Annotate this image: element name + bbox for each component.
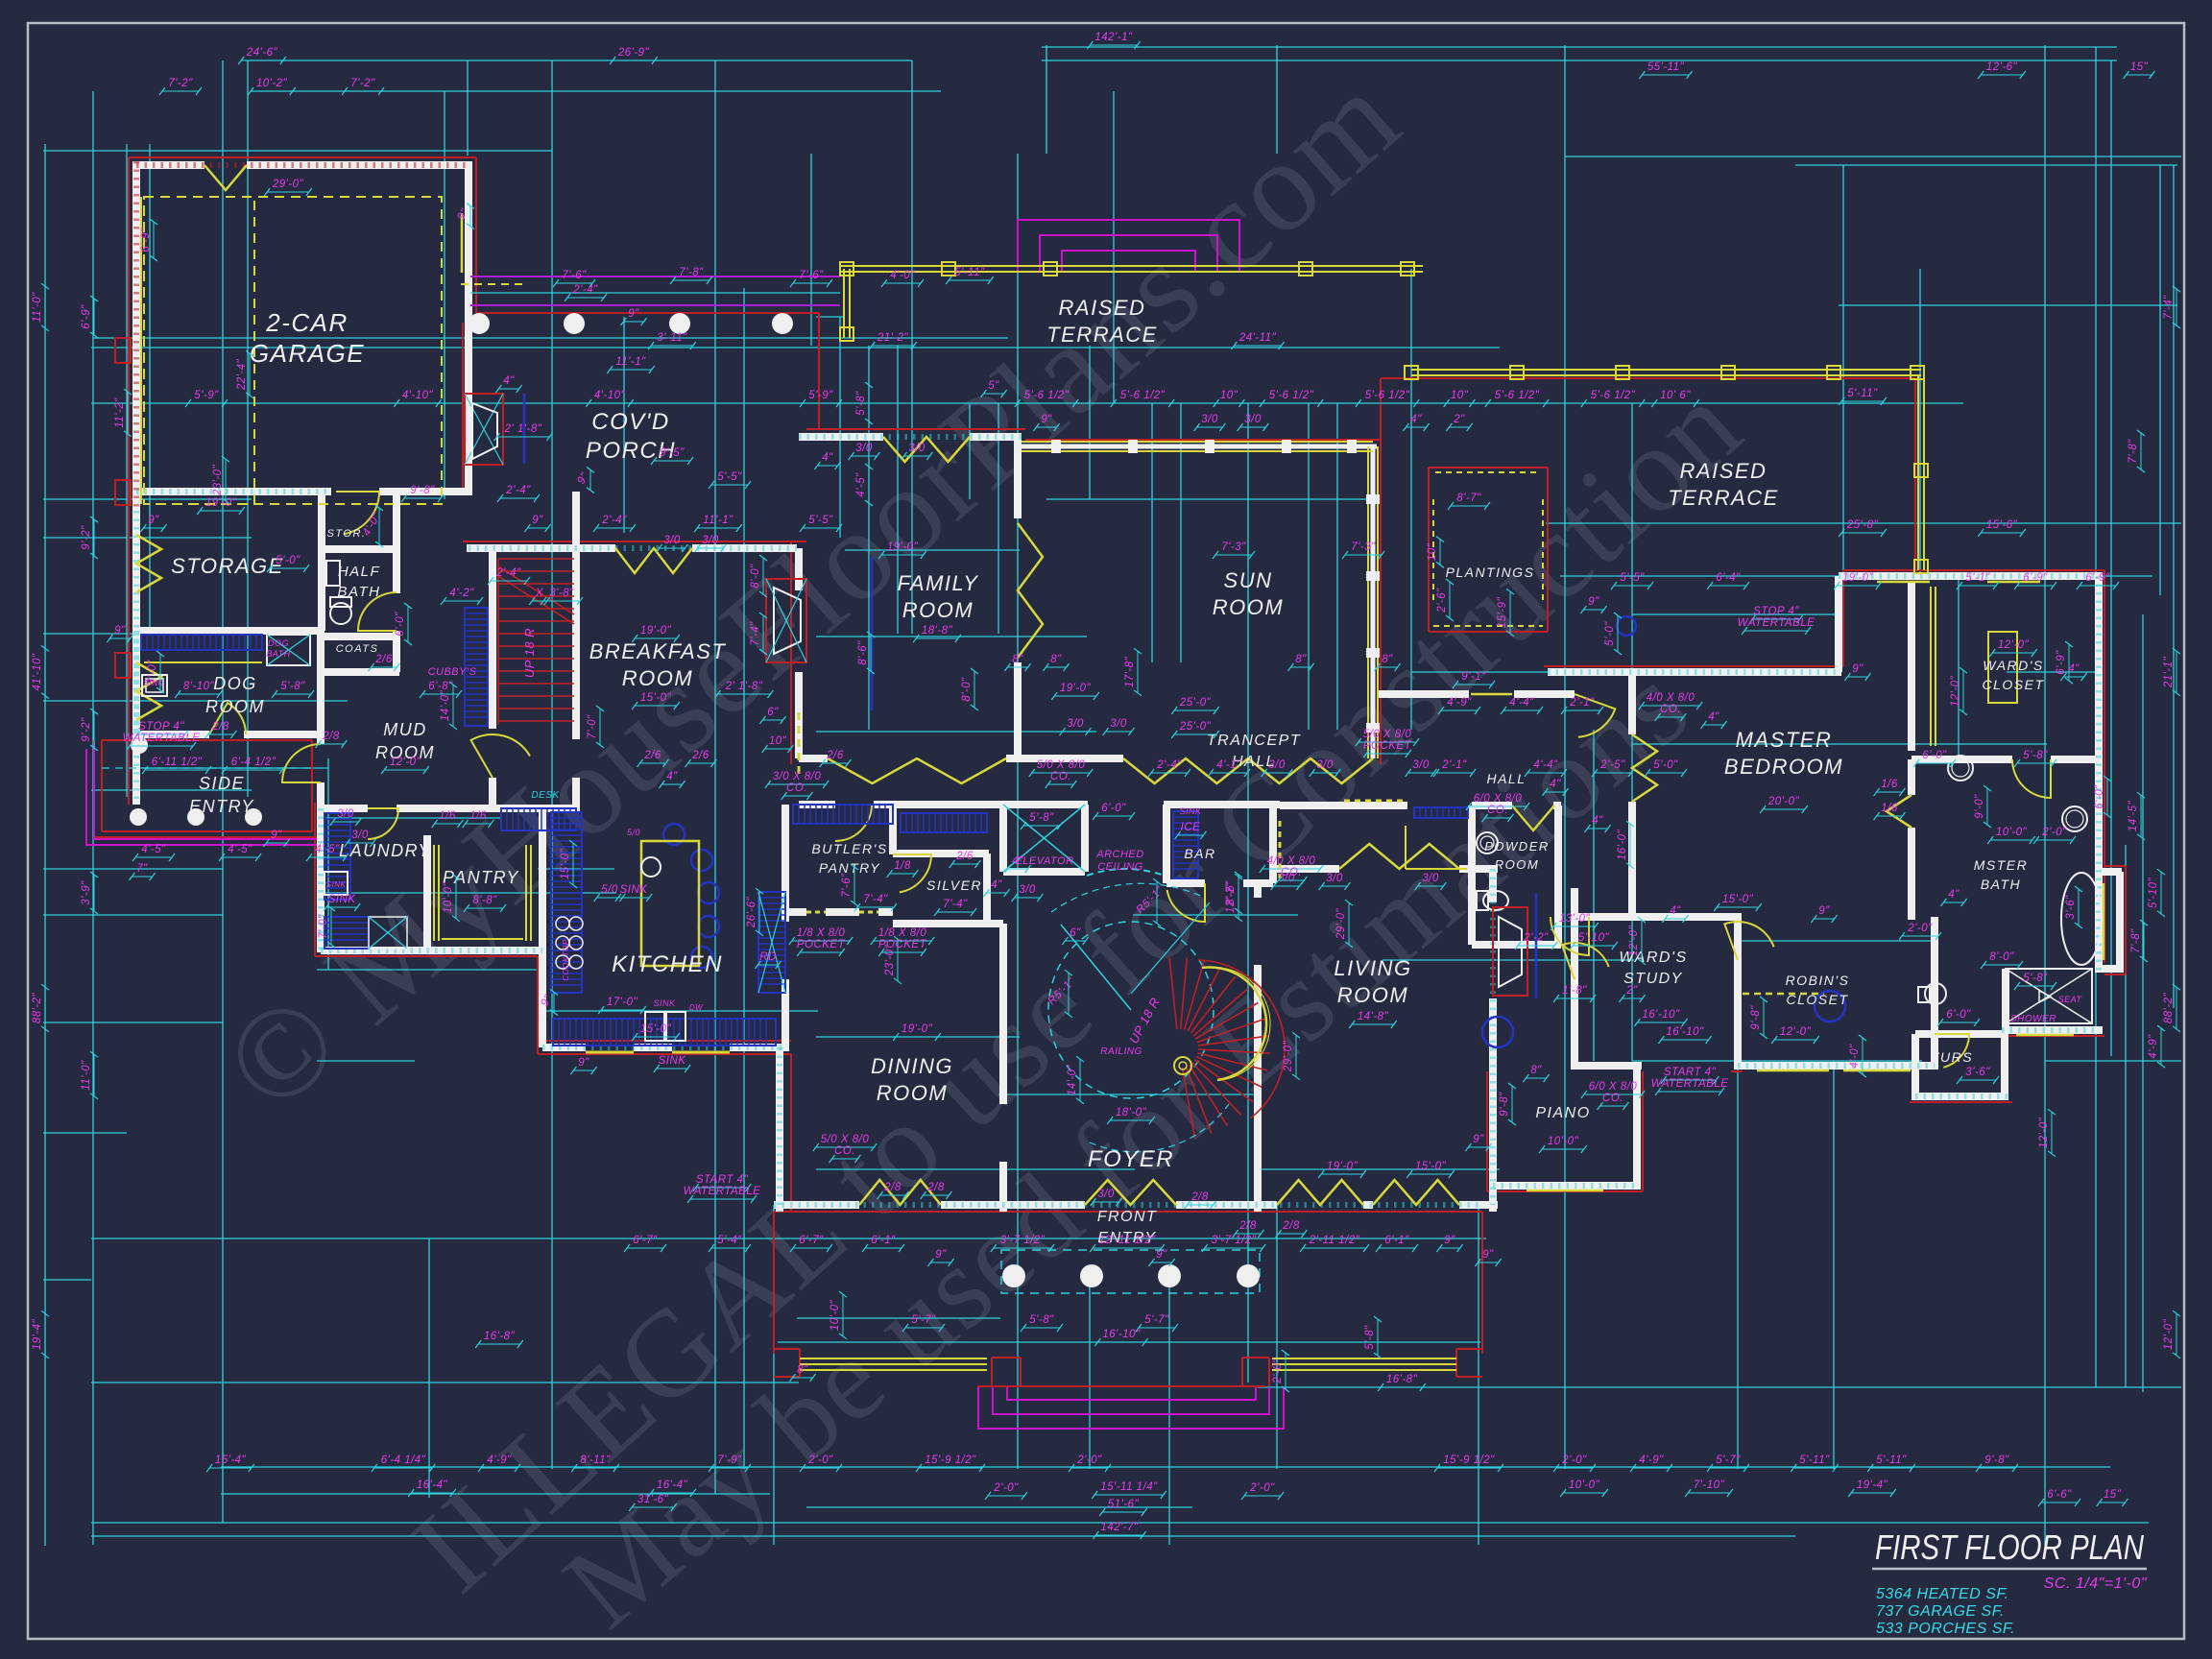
svg-text:15'-0": 15'-0" <box>560 848 571 879</box>
svg-text:4": 4" <box>1012 855 1023 867</box>
svg-text:GARAGE: GARAGE <box>250 339 365 368</box>
svg-text:4": 4" <box>2068 663 2080 675</box>
svg-text:POCKET: POCKET <box>797 939 846 950</box>
svg-text:WATERTABLE: WATERTABLE <box>123 733 201 744</box>
svg-text:DOG: DOG <box>268 638 289 648</box>
svg-text:7'-9": 7'-9" <box>717 1455 742 1466</box>
svg-text:7'-4": 7'-4" <box>750 621 761 646</box>
svg-text:19'-0": 19'-0" <box>902 1023 933 1035</box>
svg-text:ROBIN'S: ROBIN'S <box>1786 973 1850 988</box>
svg-text:8'-7": 8'-7" <box>1456 493 1481 504</box>
svg-text:14'-8": 14'-8" <box>1358 1011 1389 1022</box>
svg-text:6'-0": 6'-0" <box>1922 750 1947 761</box>
svg-text:ARCHED: ARCHED <box>1095 849 1143 860</box>
svg-text:7'-8": 7'-8" <box>2130 928 2142 953</box>
svg-text:3/0: 3/0 <box>702 535 719 546</box>
svg-text:2/8: 2/8 <box>211 721 229 733</box>
svg-text:PIANO: PIANO <box>1535 1105 1590 1121</box>
svg-text:6'-0": 6'-0" <box>2094 784 2105 809</box>
svg-text:BAR: BAR <box>1184 846 1215 861</box>
svg-text:10'-0": 10'-0" <box>443 881 454 913</box>
svg-text:FOYER: FOYER <box>1088 1146 1174 1172</box>
svg-text:SHOWER: SHOWER <box>2010 1014 2056 1024</box>
svg-text:41'-10": 41'-10" <box>32 653 43 691</box>
svg-text:2/8: 2/8 <box>926 1182 945 1193</box>
svg-text:9": 9" <box>1444 1235 1455 1246</box>
svg-text:4/0 X 8/0: 4/0 X 8/0 <box>1267 855 1316 867</box>
svg-text:2'-4": 2'-4" <box>495 567 521 579</box>
svg-text:10'-0": 10'-0" <box>829 1299 841 1331</box>
svg-text:7'-3": 7'-3" <box>1221 541 1246 553</box>
svg-text:5'-6 1/2": 5'-6 1/2" <box>1024 390 1070 401</box>
svg-text:5'-1": 5'-1" <box>1965 572 1990 584</box>
svg-text:142'-1": 142'-1" <box>1094 32 1133 43</box>
svg-text:POCKET: POCKET <box>878 939 927 950</box>
svg-text:4'-4": 4'-4" <box>1533 759 1558 771</box>
svg-text:1/6: 1/6 <box>439 810 456 822</box>
svg-text:18'-8": 18'-8" <box>922 625 953 637</box>
svg-text:19'-0": 19'-0" <box>640 625 672 637</box>
svg-text:7'-0": 7'-0" <box>318 914 329 939</box>
svg-text:29'-0": 29'-0" <box>1283 1040 1294 1072</box>
svg-text:1'-8": 1'-8" <box>1562 985 1587 997</box>
svg-text:ROOM: ROOM <box>1337 983 1408 1007</box>
svg-text:4/0 X 8/0: 4/0 X 8/0 <box>1647 692 1695 704</box>
svg-text:WATERTABLE: WATERTABLE <box>1738 617 1815 629</box>
svg-text:4'-4": 4'-4" <box>1509 697 1534 709</box>
svg-text:CO.: CO. <box>1487 805 1508 816</box>
svg-text:8'-0": 8'-0" <box>750 564 761 589</box>
svg-text:6'-0": 6'-0" <box>395 612 406 637</box>
svg-text:88'-2": 88'-2" <box>32 992 43 1023</box>
svg-text:15'-0": 15'-0" <box>640 1023 672 1035</box>
svg-text:HALL: HALL <box>1486 771 1526 786</box>
svg-text:BUTLER'S: BUTLER'S <box>811 841 887 856</box>
svg-text:7'-0": 7'-0" <box>147 660 158 685</box>
svg-text:15'-0": 15'-0" <box>1415 1161 1447 1172</box>
svg-text:3/0: 3/0 <box>1201 414 1218 425</box>
svg-text:SINK: SINK <box>653 998 676 1008</box>
svg-text:2'-5": 2'-5" <box>1599 759 1625 771</box>
svg-text:5'-5": 5'-5" <box>717 471 742 483</box>
svg-text:SINK: SINK <box>326 880 347 889</box>
svg-text:23'-0": 23'-0" <box>212 464 224 496</box>
svg-text:6'-1": 6'-1" <box>1384 1235 1409 1246</box>
svg-text:25'-0": 25'-0" <box>1179 697 1212 709</box>
svg-text:3/0: 3/0 <box>663 535 681 546</box>
svg-text:CUBBY'S: CUBBY'S <box>428 666 477 678</box>
svg-text:2/8: 2/8 <box>322 731 340 742</box>
svg-text:CEILING: CEILING <box>1097 861 1143 873</box>
svg-text:7'-6": 7'-6" <box>562 270 587 281</box>
svg-text:2/8: 2/8 <box>1238 1220 1257 1232</box>
svg-text:19'-0": 19'-0" <box>1327 1161 1358 1172</box>
svg-text:5'-9": 5'-9" <box>808 390 833 401</box>
svg-text:8": 8" <box>797 1364 808 1376</box>
svg-text:COOKTOP: COOKTOP <box>562 939 570 981</box>
svg-text:9'-2": 9'-2" <box>81 717 92 742</box>
svg-text:1/8 X 8/0: 1/8 X 8/0 <box>878 927 927 939</box>
svg-text:12'-0": 12'-0" <box>1950 675 1961 707</box>
svg-text:9": 9" <box>114 625 126 637</box>
svg-text:6'-4": 6'-4" <box>1716 572 1741 584</box>
svg-text:MASTER: MASTER <box>1736 728 1833 752</box>
svg-text:10'-0": 10'-0" <box>1569 1479 1600 1491</box>
svg-text:CLOSET: CLOSET <box>1786 992 1848 1007</box>
svg-text:9": 9" <box>628 308 639 320</box>
svg-text:11'-0": 11'-0" <box>81 1060 92 1091</box>
svg-text:3/0: 3/0 <box>1244 414 1262 425</box>
svg-text:2/8: 2/8 <box>1282 1220 1300 1232</box>
svg-text:51'-6": 51'-6" <box>1108 1499 1140 1510</box>
svg-text:2/6: 2/6 <box>374 654 393 665</box>
svg-text:16'-4": 16'-4" <box>657 1479 688 1491</box>
svg-text:6'-9": 6'-9" <box>81 304 92 329</box>
svg-text:1/6: 1/6 <box>1881 779 1898 790</box>
svg-text:9'-2": 9'-2" <box>81 525 92 550</box>
svg-text:6'-6": 6'-6" <box>2047 1489 2072 1501</box>
svg-text:BATH: BATH <box>1981 877 2021 892</box>
svg-text:8": 8" <box>1050 654 1062 665</box>
svg-text:12'-0": 12'-0" <box>2163 1318 2175 1350</box>
svg-text:3'-11": 3'-11" <box>657 332 687 344</box>
svg-text:DOG: DOG <box>213 674 257 693</box>
svg-text:25'-0": 25'-0" <box>1179 721 1212 733</box>
svg-text:2'-0": 2'-0" <box>807 1455 833 1466</box>
svg-text:19'-0": 19'-0" <box>1842 572 1874 584</box>
svg-text:START 4": START 4" <box>1664 1067 1717 1078</box>
svg-text:MUD: MUD <box>383 720 427 739</box>
svg-text:2'-4": 2'-4" <box>1156 759 1182 771</box>
svg-text:15": 15" <box>2130 61 2149 73</box>
svg-text:737 GARAGE SF.: 737 GARAGE SF. <box>1876 1603 2005 1620</box>
svg-text:RD: RD <box>759 951 777 963</box>
svg-text:2'-4": 2'-4" <box>505 485 531 496</box>
svg-text:19'-0": 19'-0" <box>887 541 919 553</box>
svg-text:19'-0": 19'-0" <box>205 497 237 509</box>
svg-text:8": 8" <box>1012 654 1023 665</box>
svg-text:4": 4" <box>991 879 1002 891</box>
svg-text:5'-11": 5'-11" <box>1847 388 1878 399</box>
svg-text:7'-10": 7'-10" <box>1694 1479 1725 1491</box>
svg-text:4": 4" <box>1592 815 1603 827</box>
svg-text:6'-4 1/2": 6'-4 1/2" <box>231 757 276 768</box>
svg-text:7'-4": 7'-4" <box>943 899 968 910</box>
svg-text:26'-6": 26'-6" <box>746 896 757 928</box>
svg-text:533 PORCHES SF.: 533 PORCHES SF. <box>1876 1621 2015 1637</box>
svg-text:3/0: 3/0 <box>1316 759 1334 771</box>
svg-text:4'-9": 4'-9" <box>1639 1455 1664 1466</box>
svg-text:9'-5": 9'-5" <box>660 447 685 459</box>
svg-text:12'-0": 12'-0" <box>390 757 421 768</box>
svg-text:5'-6 1/2": 5'-6 1/2" <box>1495 390 1540 401</box>
svg-text:8'-0": 8'-0" <box>961 677 973 702</box>
svg-text:ROOM: ROOM <box>1495 857 1539 872</box>
svg-text:TRANCEPT: TRANCEPT <box>1207 733 1301 749</box>
svg-text:8": 8" <box>1295 654 1307 665</box>
svg-text:5364 HEATED SF.: 5364 HEATED SF. <box>1876 1586 2009 1602</box>
svg-text:12'-0": 12'-0" <box>1780 1026 1812 1038</box>
svg-text:2'-1": 2'-1" <box>1441 759 1467 771</box>
svg-text:9": 9" <box>1041 414 1052 425</box>
svg-text:5'-7": 5'-7" <box>1716 1455 1741 1466</box>
svg-text:3/0: 3/0 <box>1326 873 1343 884</box>
svg-text:7'-2": 7'-2" <box>168 78 193 89</box>
svg-text:3'-9": 3'-9" <box>81 880 92 905</box>
svg-text:7'-6": 7'-6" <box>799 270 824 281</box>
svg-text:55'-11": 55'-11" <box>1647 61 1685 73</box>
svg-text:STOP 4": STOP 4" <box>138 721 184 733</box>
svg-text:7'-0": 7'-0" <box>587 714 598 739</box>
svg-text:10": 10" <box>1451 390 1469 401</box>
svg-text:5'-8": 5'-8" <box>1364 1325 1376 1350</box>
svg-text:26'-9": 26'-9" <box>617 47 650 59</box>
svg-text:X: X <box>535 588 544 599</box>
svg-text:BREAKFAST: BREAKFAST <box>589 639 727 663</box>
svg-text:15'-9 1/2": 15'-9 1/2" <box>1443 1455 1495 1466</box>
svg-text:14'-5": 14'-5" <box>2128 800 2139 831</box>
svg-text:16'-10": 16'-10" <box>1666 1026 1704 1038</box>
svg-text:88'-2": 88'-2" <box>2163 992 2175 1023</box>
svg-text:SINK: SINK <box>328 894 357 905</box>
svg-text:2'-0": 2'-0" <box>1561 1455 1587 1466</box>
svg-text:19'-4": 19'-4" <box>32 1318 43 1350</box>
svg-text:6'-11 1/2": 6'-11 1/2" <box>152 757 203 768</box>
svg-text:22'-4": 22'-4" <box>236 358 248 391</box>
svg-text:COATS: COATS <box>336 643 379 655</box>
svg-text:4'-5": 4'-5" <box>855 472 867 497</box>
svg-text:WARD'S: WARD'S <box>1983 658 2044 673</box>
svg-text:SUN: SUN <box>1224 568 1273 592</box>
svg-text:5'-0": 5'-0" <box>276 555 301 566</box>
svg-text:STOP 4": STOP 4" <box>1753 606 1799 617</box>
svg-text:11'-0": 11'-0" <box>32 292 43 323</box>
svg-text:2' 1'-8": 2' 1'-8" <box>725 681 763 692</box>
svg-text:ICE: ICE <box>1181 822 1201 833</box>
svg-text:5'-4": 5'-4" <box>717 1235 742 1246</box>
svg-text:7'-8": 7'-8" <box>679 267 704 278</box>
svg-text:5/0 X 8/0: 5/0 X 8/0 <box>821 1134 870 1145</box>
svg-text:7'-4": 7'-4" <box>863 894 888 905</box>
svg-text:DINING: DINING <box>871 1054 953 1078</box>
svg-text:5'-5": 5'-5" <box>808 515 833 526</box>
svg-text:6'-9": 6'-9" <box>2056 650 2067 675</box>
svg-text:10'-2": 10'-2" <box>256 78 288 89</box>
svg-text:9'-8": 9'-8" <box>410 485 435 496</box>
svg-text:9": 9" <box>148 515 159 526</box>
svg-text:5'-6 1/2": 5'-6 1/2" <box>1365 390 1410 401</box>
svg-text:16'-8": 16'-8" <box>1386 1374 1418 1385</box>
svg-text:2'-6": 2'-6" <box>1436 588 1448 613</box>
svg-text:LAUNDRY: LAUNDRY <box>339 841 431 860</box>
svg-text:5'-10": 5'-10" <box>2148 877 2159 908</box>
svg-text:BATH: BATH <box>338 584 381 600</box>
svg-text:15'-9": 15'-9" <box>1497 596 1508 628</box>
svg-text:2'-2": 2'-2" <box>1523 932 1549 944</box>
svg-text:6/0 X 8/0: 6/0 X 8/0 <box>1474 793 1523 805</box>
svg-text:2'-0": 2'-0" <box>1249 1482 1275 1494</box>
svg-text:START 4": START 4" <box>696 1174 749 1186</box>
svg-text:16'-0": 16'-0" <box>1617 829 1628 860</box>
svg-text:10": 10" <box>769 735 787 747</box>
svg-text:29'-0": 29'-0" <box>1335 907 1347 940</box>
svg-text:20'-0": 20'-0" <box>1767 796 1800 807</box>
svg-text:18'-0": 18'-0" <box>1116 1107 1147 1118</box>
svg-text:8": 8" <box>1530 1065 1542 1076</box>
svg-text:TERRACE: TERRACE <box>1046 323 1158 347</box>
svg-text:12'-2": 12'-2" <box>1225 881 1237 913</box>
svg-text:CO.: CO. <box>1602 1093 1623 1104</box>
svg-text:5'-6 1/2": 5'-6 1/2" <box>1591 390 1636 401</box>
svg-text:25'-8": 25'-8" <box>1846 519 1879 531</box>
svg-text:WATERTABLE: WATERTABLE <box>684 1186 761 1197</box>
svg-text:5'-7": 5'-7" <box>911 1314 936 1326</box>
svg-text:4'-9": 4'-9" <box>487 1455 512 1466</box>
svg-text:6'-7": 6'-7" <box>799 1235 824 1246</box>
svg-text:SINK: SINK <box>659 1055 687 1067</box>
svg-text:2'-4": 2'-4" <box>572 284 598 296</box>
svg-text:5'-5": 5'-5" <box>1620 572 1645 584</box>
svg-text:8'-6": 8'-6" <box>857 640 869 665</box>
svg-text:RAISED: RAISED <box>1680 459 1767 483</box>
svg-text:6": 6" <box>767 707 779 718</box>
svg-text:8'-10": 8'-10" <box>183 681 215 692</box>
svg-text:ROOM: ROOM <box>902 598 974 622</box>
svg-text:4": 4" <box>666 771 678 782</box>
svg-text:6'-9": 6'-9" <box>2023 572 2048 584</box>
svg-text:11'-1": 11'-1" <box>703 515 733 526</box>
svg-text:POCKET: POCKET <box>1363 740 1412 752</box>
svg-text:4": 4" <box>1670 905 1681 917</box>
svg-text:2/6: 2/6 <box>826 750 844 761</box>
svg-text:CLOSET: CLOSET <box>1982 677 2044 692</box>
svg-text:ROOM: ROOM <box>1213 595 1284 619</box>
svg-text:RAILING: RAILING <box>1100 1046 1142 1057</box>
svg-text:BEDROOM: BEDROOM <box>1724 755 1843 779</box>
svg-text:15'-4": 15'-4" <box>215 1455 247 1466</box>
svg-text:8'-8": 8'-8" <box>472 895 497 906</box>
svg-text:15'-6": 15'-6" <box>1986 519 2018 531</box>
svg-text:STORAGE: STORAGE <box>171 554 284 578</box>
svg-text:16'-10": 16'-10" <box>1642 1009 1680 1021</box>
svg-text:29'-0": 29'-0" <box>272 179 304 190</box>
svg-text:MSTER: MSTER <box>1974 857 2029 873</box>
svg-text:7'-8": 7'-8" <box>2128 439 2139 464</box>
svg-text:5'-6 1/2": 5'-6 1/2" <box>1120 390 1166 401</box>
svg-text:9": 9" <box>1156 1249 1167 1261</box>
svg-text:4'-5": 4'-5" <box>315 844 340 855</box>
svg-text:7": 7" <box>136 863 148 875</box>
svg-text:2'-0": 2'-0" <box>993 1482 1019 1494</box>
svg-text:4": 4" <box>1550 779 1561 790</box>
svg-text:STOR.: STOR. <box>327 528 367 540</box>
svg-text:2": 2" <box>1625 985 1638 997</box>
svg-text:5'-8": 5'-8" <box>280 681 305 692</box>
svg-text:8'-11": 8'-11" <box>580 1455 611 1466</box>
svg-text:6'-1": 6'-1" <box>871 1235 896 1246</box>
svg-text:9": 9" <box>1482 1249 1494 1261</box>
svg-text:2'-1": 2'-1" <box>1569 697 1595 709</box>
svg-text:5'-6 1/2": 5'-6 1/2" <box>1269 390 1314 401</box>
svg-text:5'-0": 5'-0" <box>1604 621 1616 646</box>
svg-text:ELEVATOR: ELEVATOR <box>1015 855 1073 867</box>
svg-text:2/6: 2/6 <box>643 750 661 761</box>
svg-text:14'-0": 14'-0" <box>1067 1064 1078 1095</box>
svg-text:CO.: CO. <box>786 782 807 794</box>
svg-text:9": 9" <box>1852 663 1863 675</box>
svg-text:2'-0": 2'-0" <box>2041 827 2067 838</box>
svg-text:15": 15" <box>2104 1489 2122 1501</box>
svg-text:BATH: BATH <box>266 649 290 659</box>
svg-text:11'-2": 11'-2" <box>114 397 126 428</box>
svg-text:RAISED: RAISED <box>1059 296 1146 320</box>
svg-text:2/8: 2/8 <box>883 1182 902 1193</box>
svg-text:5'-9": 5'-9" <box>194 390 219 401</box>
svg-text:2'-4": 2'-4" <box>601 515 627 526</box>
svg-text:15'-0": 15'-0" <box>1722 894 1754 905</box>
svg-text:4": 4" <box>1948 889 1960 901</box>
svg-text:3'-6": 3'-6" <box>2065 895 2077 920</box>
svg-text:8": 8" <box>1382 654 1393 665</box>
svg-text:5/0 X 8/0: 5/0 X 8/0 <box>1363 729 1412 740</box>
svg-text:4'-5": 4'-5" <box>141 844 166 855</box>
svg-text:TERRACE: TERRACE <box>1668 486 1779 510</box>
svg-text:4'-10": 4'-10" <box>402 390 434 401</box>
svg-text:SINK: SINK <box>1179 806 1202 816</box>
svg-text:2/6: 2/6 <box>691 750 709 761</box>
svg-text:31'-6": 31'-6" <box>637 1494 669 1505</box>
svg-text:3/0: 3/0 <box>351 829 369 841</box>
svg-text:9'-1": 9'-1" <box>1461 671 1486 683</box>
svg-text:3'-7 1/2": 3'-7 1/2" <box>1212 1235 1257 1246</box>
svg-text:7'-6": 7'-6" <box>841 873 853 898</box>
svg-text:5/0: 5/0 <box>601 884 618 896</box>
svg-text:9'-8": 9'-8" <box>1984 1455 2009 1466</box>
svg-text:16'-10": 16'-10" <box>1102 1329 1141 1340</box>
svg-text:9": 9" <box>578 1057 589 1069</box>
svg-text:3/0: 3/0 <box>1422 873 1439 884</box>
svg-text:9": 9" <box>532 515 543 526</box>
svg-text:UP 18 R: UP 18 R <box>522 628 537 678</box>
svg-text:10": 10" <box>1427 542 1438 561</box>
svg-text:1/8 X 8/0: 1/8 X 8/0 <box>797 927 846 939</box>
svg-text:6/0 X 8/0: 6/0 X 8/0 <box>1589 1081 1638 1093</box>
svg-text:PANTRY: PANTRY <box>443 868 520 887</box>
svg-text:3/0: 3/0 <box>1110 718 1127 730</box>
svg-text:2'-0": 2'-0" <box>1907 923 1933 934</box>
svg-text:CO.: CO. <box>834 1145 855 1157</box>
svg-text:14'-0": 14'-0" <box>440 689 451 721</box>
svg-text:2": 2" <box>1453 414 1465 425</box>
svg-text:HALF: HALF <box>338 564 380 580</box>
svg-text:6'-9": 6'-9" <box>140 228 152 252</box>
svg-text:4'-9": 4'-9" <box>1447 697 1472 709</box>
svg-text:2'-0": 2'-0" <box>1272 1358 1284 1384</box>
svg-text:16'-8": 16'-8" <box>484 1331 516 1342</box>
svg-text:13'-0": 13'-0" <box>1559 913 1591 925</box>
svg-text:ROOM: ROOM <box>877 1081 948 1105</box>
svg-text:4'-10": 4'-10" <box>594 390 626 401</box>
svg-text:WATERTABLE: WATERTABLE <box>1651 1078 1729 1090</box>
svg-text:CO.: CO. <box>1281 867 1302 878</box>
svg-text:12'-0": 12'-0" <box>1628 925 1640 956</box>
svg-text:2'-11 1/2": 2'-11 1/2" <box>1309 1235 1360 1246</box>
svg-text:CO.: CO. <box>1050 771 1071 782</box>
svg-text:SILVER: SILVER <box>926 878 982 893</box>
svg-text:7'-4": 7'-4" <box>2163 295 2175 320</box>
svg-text:5'-8": 5'-8" <box>2023 973 2048 984</box>
svg-text:4": 4" <box>1708 711 1719 723</box>
